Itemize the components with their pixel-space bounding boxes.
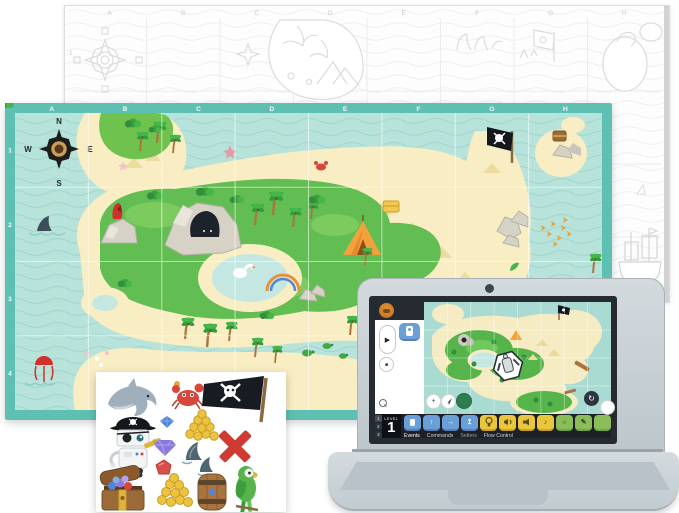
grid-row-label: 1 [8,148,12,155]
horn-icon [503,418,513,426]
grid-row-label: 4 [8,370,12,377]
run-program-button[interactable]: ▶ [379,325,396,354]
level-list: 1 2 3 [375,414,382,438]
grid-column-label: E [343,106,348,113]
crab-sticker [172,381,204,409]
red-x-sticker [218,430,252,463]
grid-column-label: F [416,106,420,113]
palette-wrap: ↑ → ↥ ♪ ☼ ✎ Events Commands [401,414,611,438]
grid-column-label: G [548,10,553,17]
map-mode-button[interactable] [456,393,472,409]
grid-column-label: H [563,106,568,113]
purple-diamond-sticker [154,440,176,456]
tab-commands[interactable]: Commands [427,433,454,438]
bulb-icon [485,417,493,427]
block-clipped[interactable] [594,415,611,431]
stop-program-button[interactable]: ■ [379,357,394,372]
level-row-1[interactable]: 1 [375,415,382,422]
menu-icon [383,309,390,313]
map-recenter-button[interactable] [441,394,456,409]
wooden-barrel-sticker [198,474,226,510]
block-move-up[interactable]: ↑ [423,415,440,431]
blue-gem-sticker [160,416,174,428]
map-reset-button[interactable]: ↻ [584,391,599,406]
parrot-sticker [234,466,258,512]
map-zoom-in-button[interactable]: + [426,394,441,409]
tab-flow-control[interactable]: Flow Control [484,433,513,438]
arrow-right-icon: → [447,419,454,426]
block-robot-event[interactable] [404,415,421,431]
recenter-arrow-icon [445,398,452,405]
product-scene: A B C D E F G H 1 [0,0,679,513]
command-block-palette: ↑ → ↥ ♪ ☼ ✎ [404,415,611,431]
stop-icon: ■ [385,362,388,368]
block-sound[interactable]: ♪ [537,415,554,431]
home-button[interactable] [379,303,394,318]
block-move-right[interactable]: → [442,415,459,431]
grid-column-label: C [196,106,201,113]
tab-setters[interactable]: Setters [460,433,476,438]
grid-column-label: H [622,10,627,17]
zoom-in-icon: + [431,398,435,405]
compass-west-label: W [24,145,32,154]
grid-column-label: D [269,106,274,113]
reset-icon: ↻ [588,394,595,403]
level-row-2[interactable]: 2 [375,423,382,430]
block-light[interactable] [480,415,497,431]
robot-icon [406,326,413,336]
treasure-chest-sticker [99,464,144,510]
block-palette-bar: 1 2 3 LEVEL 1 ↑ → ↥ ♪ [375,414,611,438]
grid-column-label: E [402,10,407,17]
workspace-zoom-icon[interactable] [379,399,387,407]
block-horn[interactable] [499,415,516,431]
event-start-block[interactable] [399,323,420,341]
block-lift[interactable]: ↥ [461,415,478,431]
grid-row-label: 3 [8,296,12,303]
tab-events[interactable]: Events [404,433,420,438]
gold-coin-pile-sticker [183,410,221,440]
level-value: 1 [387,421,395,435]
gold-coins-sticker [156,474,194,507]
grid-column-label: B [181,10,185,17]
grid-column-label: F [475,10,479,17]
red-gem-sticker [156,460,171,474]
robot-icon [410,419,415,426]
compass-south-label: S [56,179,62,188]
note-icon: ♪ [544,419,548,426]
grid-column-label: B [123,106,128,113]
grid-row-label: 2 [8,222,12,229]
sticker-sheet [96,372,286,512]
laptop-keyboard-recess [340,462,670,490]
block-light-setter[interactable]: ☼ [556,415,573,431]
palette-tabs: Events Commands Setters Flow Control [404,433,611,438]
webcam-icon [485,284,494,293]
pencil-icon: ✎ [581,418,587,426]
speaker-icon [522,418,532,426]
level-row-3[interactable]: 3 [375,431,382,438]
map-extra-button[interactable] [600,400,615,415]
grid-column-label: G [489,106,494,113]
shark-fins-sticker [182,442,213,476]
compass-north-label: N [56,117,62,126]
grid-column-label: A [49,106,54,113]
sun-icon: ☼ [561,419,567,426]
dolphin-sticker [108,378,156,416]
block-draw[interactable]: ✎ [575,415,592,431]
block-speaker[interactable] [518,415,535,431]
gold-chest-icon [383,201,399,212]
arrow-up-icon: ↑ [430,419,434,426]
pirate-flag-sticker [202,376,266,422]
grid-row-label: 1 [69,50,73,57]
arrow-lift-icon: ↥ [467,418,473,426]
play-icon: ▶ [385,336,390,344]
grid-column-label: C [254,10,259,17]
current-level-badge: LEVEL 1 [382,414,401,438]
laptop-trackpad[interactable] [448,489,548,505]
grid-column-label: D [328,10,333,17]
outline-map-side-edge [664,6,669,302]
grid-column-label: A [108,10,113,17]
